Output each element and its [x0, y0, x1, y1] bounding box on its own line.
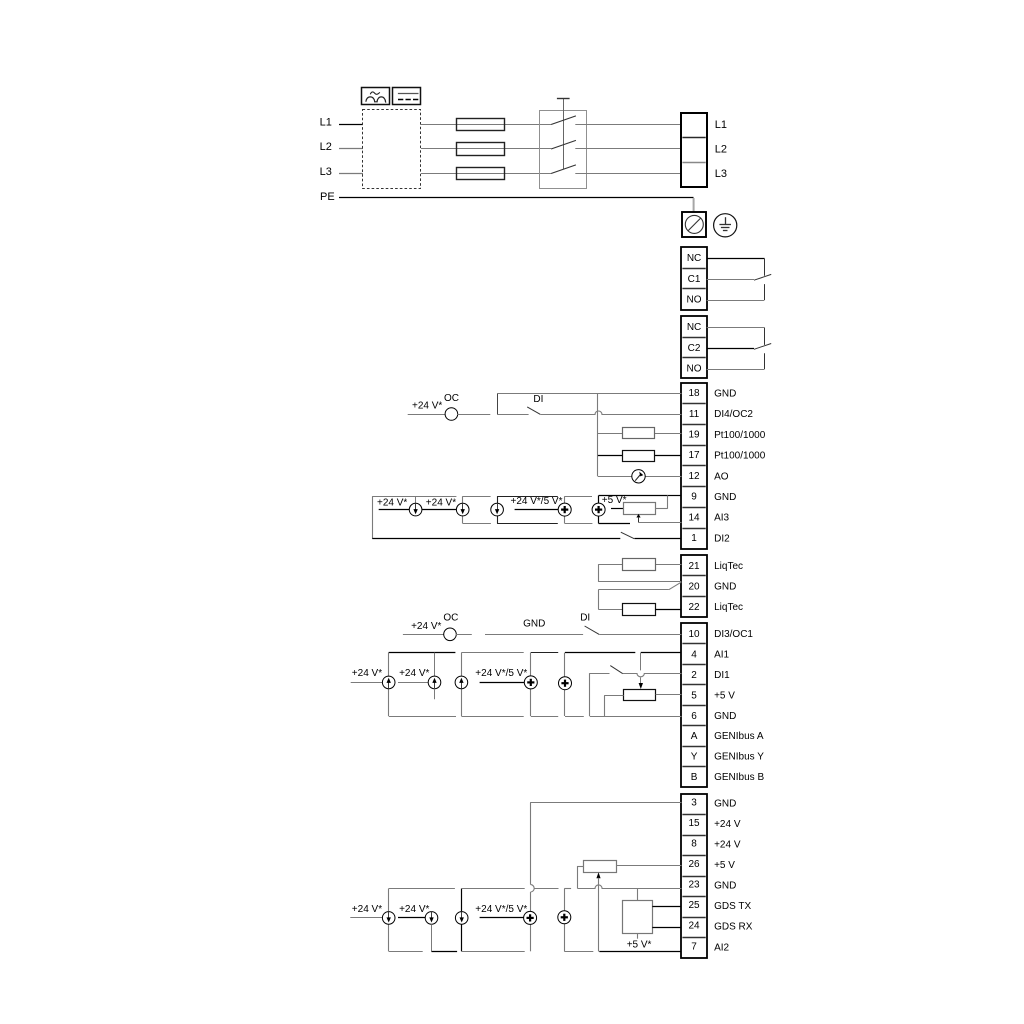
svg-text:19: 19 [688, 430, 700, 441]
svg-text:+24 V*/5 V*: +24 V*/5 V* [475, 668, 527, 679]
svg-text:GENIbus Y: GENIbus Y [714, 752, 764, 763]
svg-text:LiqTec: LiqTec [714, 602, 743, 613]
svg-text:GND: GND [714, 798, 736, 809]
svg-text:+24 V*: +24 V* [352, 904, 382, 915]
svg-text:25: 25 [688, 900, 700, 911]
svg-text:10: 10 [688, 629, 700, 640]
svg-text:GND: GND [523, 618, 545, 629]
svg-text:GENIbus B: GENIbus B [714, 772, 764, 783]
svg-text:GENIbus A: GENIbus A [714, 731, 764, 742]
svg-text:Pt100/1000: Pt100/1000 [714, 451, 766, 462]
svg-text:AI3: AI3 [714, 513, 729, 524]
svg-text:26: 26 [688, 859, 700, 870]
svg-text:+5 V: +5 V [714, 690, 735, 701]
svg-text:1: 1 [691, 533, 697, 544]
svg-text:PE: PE [320, 191, 335, 203]
svg-text:+5 V: +5 V [714, 860, 735, 871]
svg-text:DI1: DI1 [714, 670, 730, 681]
svg-text:L2: L2 [715, 143, 727, 155]
svg-text:GND: GND [714, 881, 736, 892]
svg-text:+24 V*/5 V*: +24 V*/5 V* [511, 496, 563, 507]
svg-text:GDS TX: GDS TX [714, 901, 751, 912]
svg-text:L1: L1 [715, 119, 727, 131]
svg-text:24: 24 [688, 921, 700, 932]
svg-text:+24 V*: +24 V* [399, 904, 429, 915]
svg-text:L1: L1 [320, 117, 332, 129]
svg-text:A: A [691, 731, 698, 742]
svg-text:18: 18 [688, 388, 700, 399]
svg-text:+24 V*: +24 V* [426, 497, 456, 508]
svg-text:22: 22 [688, 602, 700, 613]
svg-text:GND: GND [714, 581, 736, 592]
svg-text:AI1: AI1 [714, 649, 729, 660]
svg-text:11: 11 [689, 409, 700, 420]
svg-text:8: 8 [691, 839, 697, 850]
svg-text:6: 6 [691, 711, 697, 722]
svg-text:14: 14 [688, 512, 700, 523]
svg-text:+24 V: +24 V [714, 840, 741, 851]
svg-text:C2: C2 [688, 343, 701, 354]
svg-text:+24 V*/5 V*: +24 V*/5 V* [475, 904, 527, 915]
svg-text:OC: OC [444, 393, 459, 404]
svg-text:+5 V*: +5 V* [627, 939, 652, 950]
svg-text:4: 4 [691, 649, 697, 660]
svg-text:DI: DI [580, 613, 590, 624]
svg-text:20: 20 [688, 581, 700, 592]
svg-text:OC: OC [443, 613, 458, 624]
svg-text:GND: GND [714, 389, 736, 400]
svg-text:+24 V: +24 V [714, 819, 741, 830]
svg-text:+24 V*: +24 V* [399, 668, 429, 679]
svg-text:15: 15 [688, 818, 700, 829]
svg-text:L3: L3 [715, 168, 727, 180]
svg-text:NC: NC [687, 253, 701, 264]
svg-text:NO: NO [687, 295, 702, 306]
svg-text:+24 V*: +24 V* [352, 668, 382, 679]
svg-text:21: 21 [688, 561, 700, 572]
svg-text:AI2: AI2 [714, 942, 729, 953]
svg-text:DI2: DI2 [714, 533, 730, 544]
svg-text:LiqTec: LiqTec [714, 561, 743, 572]
svg-text:+24 V*: +24 V* [412, 400, 442, 411]
svg-text:L3: L3 [320, 166, 332, 178]
svg-text:DI4/OC2: DI4/OC2 [714, 409, 753, 420]
svg-text:17: 17 [688, 450, 700, 461]
svg-text:3: 3 [691, 797, 697, 808]
svg-text:Y: Y [691, 752, 698, 763]
svg-text:GND: GND [714, 492, 736, 503]
svg-text:NC: NC [687, 322, 701, 333]
svg-text:GDS RX: GDS RX [714, 922, 753, 933]
svg-text:Pt100/1000: Pt100/1000 [714, 430, 766, 441]
svg-text:L2: L2 [320, 141, 332, 153]
svg-text:5: 5 [691, 690, 697, 701]
svg-text:C1: C1 [688, 274, 701, 285]
svg-text:NO: NO [687, 364, 702, 375]
svg-text:GND: GND [714, 711, 736, 722]
svg-text:AO: AO [714, 471, 729, 482]
svg-text:DI: DI [533, 394, 543, 405]
svg-text:7: 7 [691, 941, 697, 952]
svg-text:12: 12 [688, 471, 700, 482]
svg-text:23: 23 [688, 880, 700, 891]
svg-text:+24 V*: +24 V* [411, 621, 441, 632]
svg-text:DI3/OC1: DI3/OC1 [714, 629, 753, 640]
svg-text:B: B [691, 772, 698, 783]
svg-text:9: 9 [691, 492, 697, 503]
svg-text:+24 V*: +24 V* [377, 497, 407, 508]
svg-text:2: 2 [691, 670, 697, 681]
